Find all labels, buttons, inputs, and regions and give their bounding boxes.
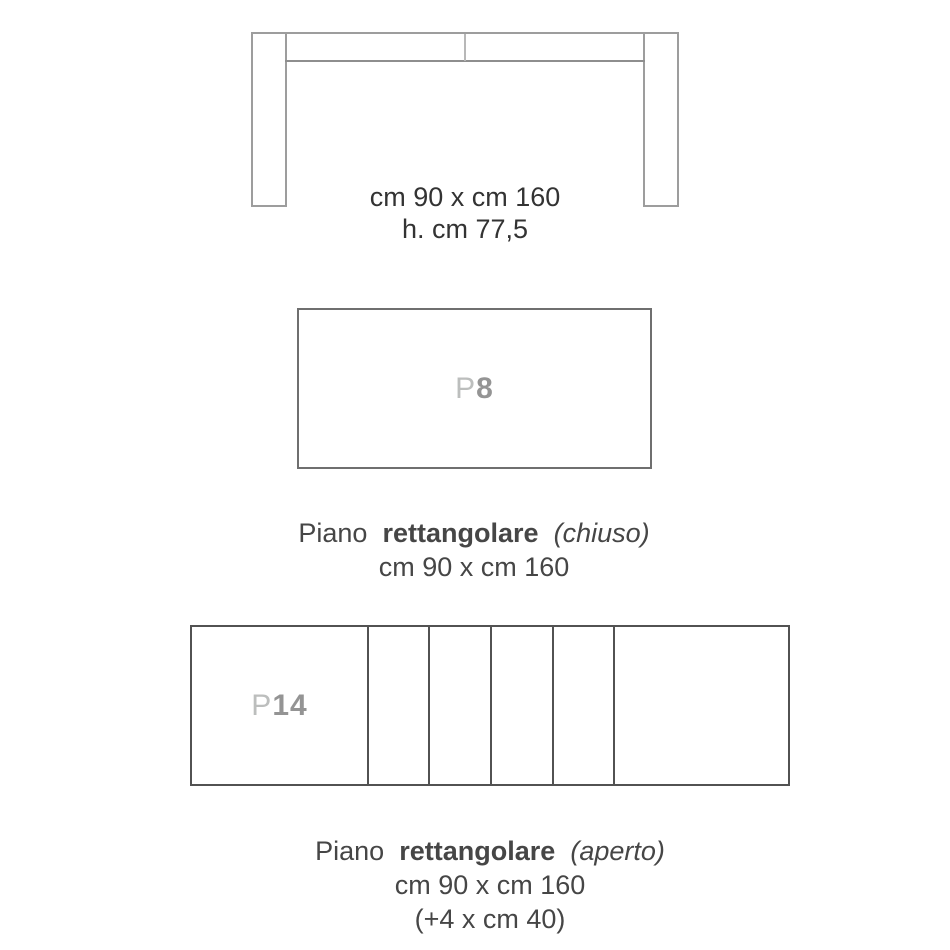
caption-word-piano: Piano — [315, 836, 384, 866]
open-top-label-number: 14 — [272, 689, 307, 722]
open-top-label: P14 — [251, 689, 307, 723]
apron-center-seam — [464, 34, 466, 61]
tabletop-closed-diagram: P8 — [297, 308, 652, 469]
product-spec-sheet: cm 90 x cm 160 h. cm 77,5 P8 Piano retta… — [0, 0, 950, 950]
tabletop-open-diagram: P14 — [190, 625, 790, 786]
open-top-caption-line3: (+4 x cm 40) — [190, 902, 790, 936]
closed-top-caption: Piano rettangolare (chiuso) cm 90 x cm 1… — [174, 516, 774, 584]
front-view-dimensions: cm 90 x cm 160 h. cm 77,5 — [165, 181, 765, 245]
caption-word-state: (aperto) — [570, 836, 665, 866]
dimensions-height: h. cm 77,5 — [165, 213, 765, 245]
extension-leaf-divider-4 — [552, 627, 554, 784]
open-top-caption: Piano rettangolare (aperto) cm 90 x cm 1… — [190, 834, 790, 936]
dimensions-width-length: cm 90 x cm 160 — [165, 181, 765, 213]
caption-word-shape: rettangolare — [382, 518, 538, 548]
extension-leaf-divider-3 — [490, 627, 492, 784]
open-top-caption-line2: cm 90 x cm 160 — [190, 868, 790, 902]
closed-top-label-number: 8 — [476, 372, 494, 405]
caption-word-shape: rettangolare — [399, 836, 555, 866]
extension-leaf-divider-1 — [367, 627, 369, 784]
closed-top-label-prefix: P — [455, 372, 476, 405]
closed-top-caption-line1: Piano rettangolare (chiuso) — [174, 516, 774, 550]
closed-top-caption-line2: cm 90 x cm 160 — [174, 550, 774, 584]
open-top-caption-line1: Piano rettangolare (aperto) — [190, 834, 790, 868]
caption-word-piano: Piano — [298, 518, 367, 548]
open-top-label-zone: P14 — [192, 627, 367, 784]
extension-leaf-divider-2 — [428, 627, 430, 784]
open-top-label-prefix: P — [251, 689, 272, 722]
closed-top-label: P8 — [455, 372, 494, 406]
extension-leaf-divider-5 — [613, 627, 615, 784]
caption-word-state: (chiuso) — [554, 518, 650, 548]
